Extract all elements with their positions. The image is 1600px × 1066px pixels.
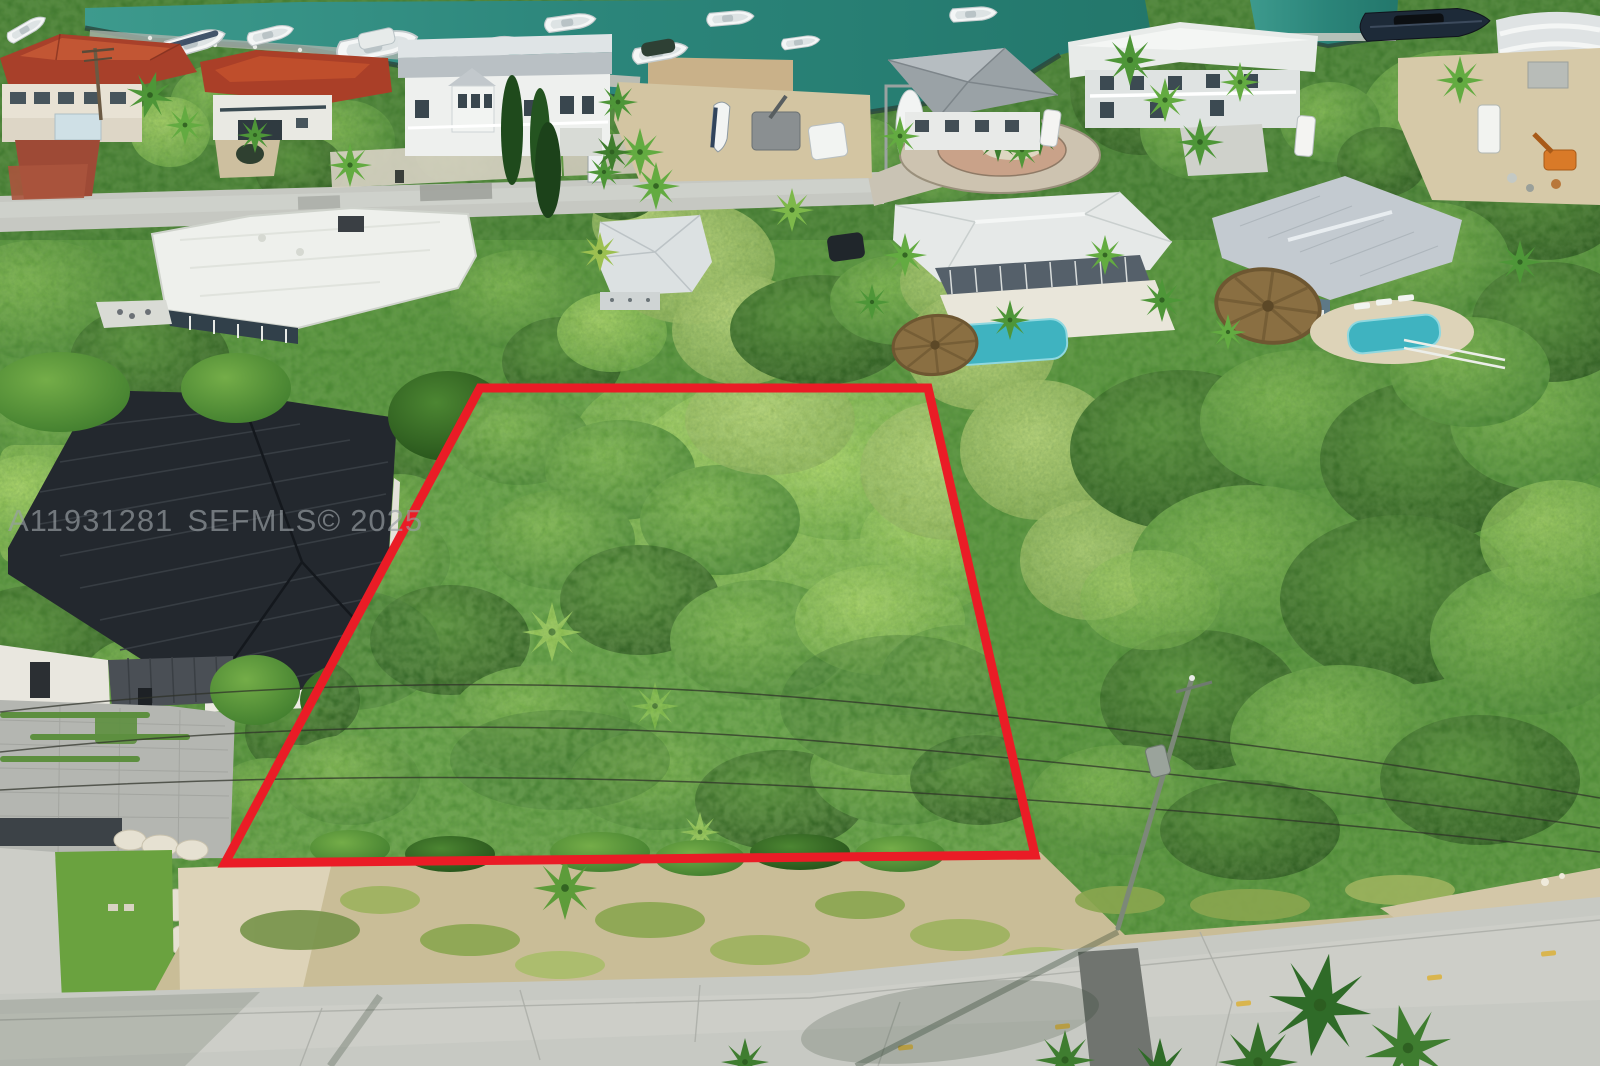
entry-door [30, 662, 50, 698]
aerial-photo: A11931281SEFMLS©2025 [0, 0, 1600, 1066]
lawn-patch [55, 850, 174, 1000]
watermark: A11931281SEFMLS©2025 [8, 503, 423, 538]
white-van [808, 122, 848, 161]
trash-bin [395, 170, 404, 183]
watermark-year: 2025 [350, 503, 423, 538]
box-truck [1478, 105, 1500, 153]
white-van [1294, 115, 1315, 156]
watermark-brand: SEFMLS© [187, 503, 341, 538]
rooftop-ac-unit [338, 216, 364, 232]
aerial-photo-stage: A11931281SEFMLS©2025 [0, 0, 1600, 1066]
watermark-listing-id: A11931281 [8, 503, 173, 538]
garage-door [55, 114, 101, 140]
garden-wall [0, 818, 122, 846]
dark-suv [826, 232, 865, 263]
boatyard-construction [1398, 48, 1600, 205]
